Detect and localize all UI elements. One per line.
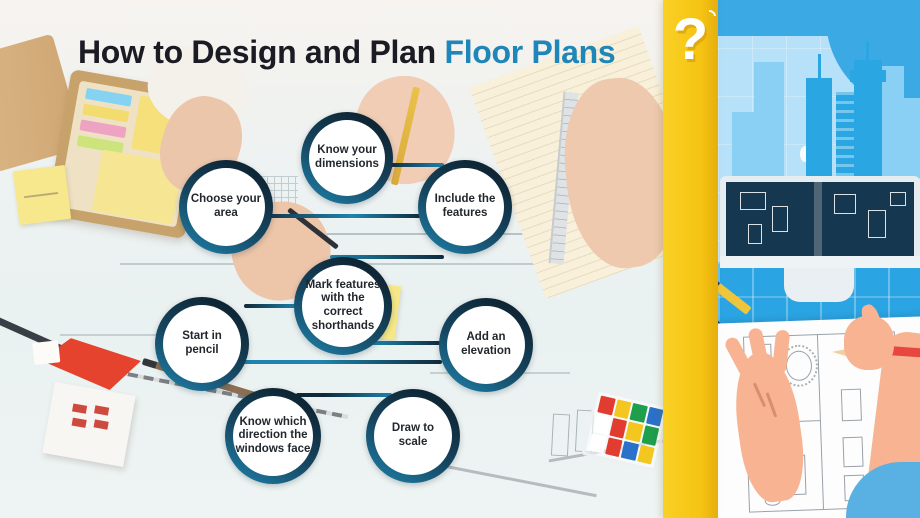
photo-clip — [605, 437, 623, 457]
step-circle-choose-your-area: Choose your area — [179, 160, 273, 254]
photo-clip — [637, 444, 655, 464]
illustration-screen-plan-sketch — [748, 224, 762, 244]
title-prefix: How to Design and Plan — [78, 34, 444, 70]
step-circle-windows-direction: Know which direction the windows face — [225, 388, 321, 484]
step-label: Draw to scale — [366, 389, 460, 483]
step-label: Add an elevation — [439, 298, 533, 392]
illustration-antenna — [818, 54, 821, 80]
photo-sticky-note-sketch — [24, 192, 58, 198]
step-label: Mark features with the correct shorthand… — [294, 257, 392, 355]
accent-strip: ? — [663, 0, 718, 518]
step-circle-include-the-features: Include the features — [418, 160, 512, 254]
photo-clip — [629, 403, 647, 423]
illustration-screen-plan-sketch — [772, 206, 788, 232]
connector-pencil-mark — [244, 304, 298, 308]
photo-clip — [625, 422, 643, 442]
connector-area-features — [268, 214, 422, 218]
floor-plan-furniture — [841, 389, 862, 422]
step-circle-know-your-dimensions: Know your dimensions — [301, 112, 393, 204]
photo-house-window — [72, 418, 87, 428]
illustration-building — [732, 112, 758, 178]
title-highlight: Floor Plans — [444, 34, 615, 70]
photo-clip — [645, 407, 663, 427]
infographic-poster: How to Design and Plan Floor Plans Know … — [0, 0, 920, 518]
step-circle-start-in-pencil: Start in pencil — [155, 297, 249, 391]
step-label: Know which direction the windows face — [225, 388, 321, 484]
connector-pencil-elevation — [242, 360, 442, 364]
illustration-screen-plan-sketch — [740, 192, 766, 210]
photo-model-house — [22, 334, 150, 475]
photo-clip — [609, 418, 627, 438]
photo-house-window — [94, 405, 109, 415]
illustration-screen-plan-sketch — [834, 194, 856, 214]
illustration-screen-plan-sketch — [890, 192, 906, 206]
photo-clip — [597, 396, 615, 416]
illustration-screen-divider — [814, 182, 822, 256]
illustration-monitor-bezel — [720, 256, 920, 268]
illustration-building — [806, 78, 832, 178]
floor-plan-furniture — [843, 437, 864, 468]
step-label: Start in pencil — [155, 297, 249, 391]
step-circle-add-an-elevation: Add an elevation — [439, 298, 533, 392]
photo-clip — [593, 414, 611, 434]
photo-clip — [621, 441, 639, 461]
photo-house-window — [72, 403, 87, 413]
photo-clip — [641, 425, 659, 445]
illustration-building — [754, 62, 784, 178]
photo-binder-clips-box — [581, 388, 663, 471]
step-label: Choose your area — [179, 160, 273, 254]
page-title: How to Design and Plan Floor Plans — [78, 34, 678, 71]
photo-house-window — [94, 419, 109, 429]
illustration-building — [898, 98, 920, 178]
photo-blueprint-box — [551, 414, 570, 457]
photo-clip — [589, 433, 607, 453]
step-circle-mark-features-shorthands: Mark features with the correct shorthand… — [294, 257, 392, 355]
photo-clip — [613, 399, 631, 419]
step-circle-draw-to-scale: Draw to scale — [366, 389, 460, 483]
illustration-panel — [718, 0, 920, 518]
step-label: Know your dimensions — [301, 112, 393, 204]
photo-sticky-note-left — [13, 165, 71, 225]
photo-model-house-chimney — [32, 340, 60, 365]
illustration-antenna — [866, 42, 869, 72]
illustration-screen-plan-sketch — [868, 210, 886, 238]
step-label: Include the features — [418, 160, 512, 254]
illustration-monitor-stand — [784, 268, 854, 302]
photo-model-house-wall — [42, 382, 135, 467]
